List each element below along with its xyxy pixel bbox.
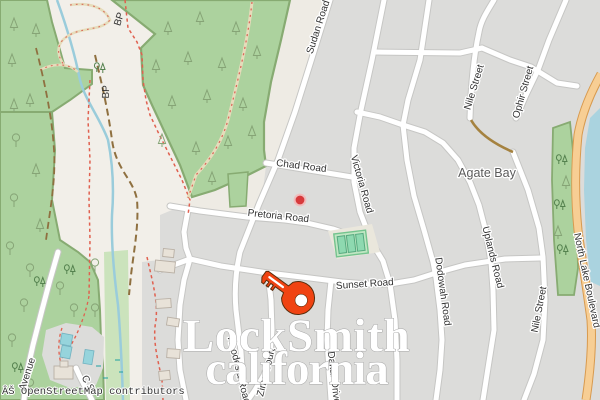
svg-text:california: california [205, 343, 388, 395]
svg-text:ÂŠ OpenStreetMap contributors: ÂŠ OpenStreetMap contributors [2, 384, 185, 398]
svg-text:BP: BP [101, 85, 112, 99]
svg-text:Agate Bay: Agate Bay [458, 166, 516, 180]
